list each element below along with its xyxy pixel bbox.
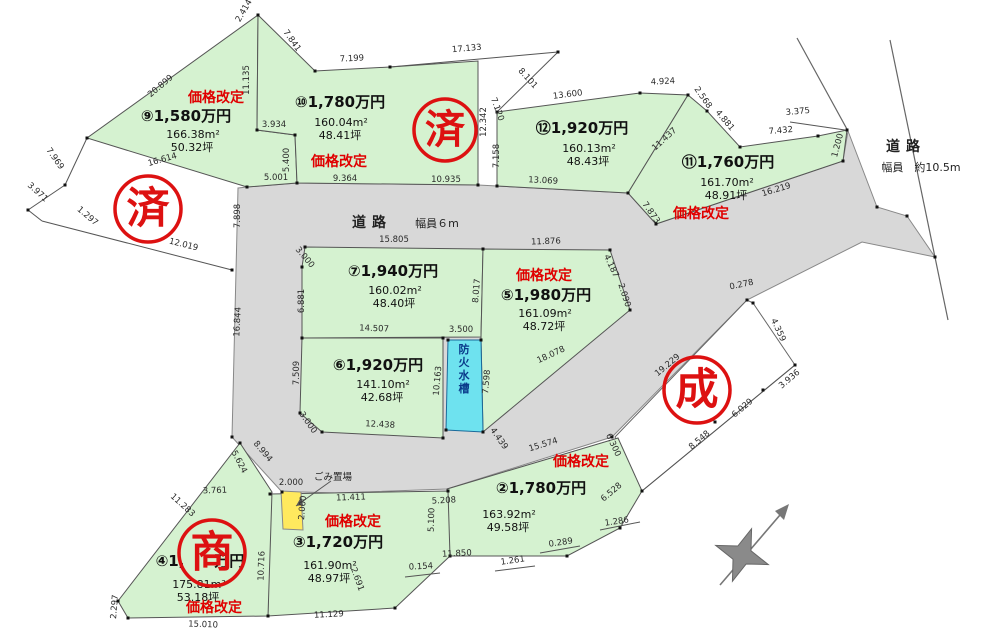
vertex-dot [794,364,797,367]
dimension-label: 3.971 [25,181,50,205]
dimension-label: 3.761 [203,486,228,497]
dimension-label: 9.364 [333,174,357,184]
price-revision-badge: 価格改定 [672,205,729,222]
dimension-label: 3.375 [785,106,810,118]
plot-area-m2: 161.70m² [700,176,754,189]
vertex-dot [314,70,317,73]
plot-area-m2: 160.02m² [368,284,422,297]
dimension-label: 7.199 [339,53,364,64]
price-revision-badge: 価格改定 [515,267,572,284]
dimension-label: 11.129 [314,609,344,621]
vertex-dot [394,607,397,610]
dimension-label: 5.100 [427,508,438,533]
dimension-label: 10.716 [256,551,267,581]
plot-area-m2: 160.13m² [562,142,616,155]
plot-price: ⑦1,940万円 [348,262,438,280]
vertex-dot [627,192,630,195]
dimension-label: 5.001 [264,173,288,183]
vertex-dot [294,134,297,137]
land-plot-map: 2.4147.8417.19917.1338.10111.13520.8993.… [0,0,1000,641]
vertex-dot [876,206,879,209]
plot-price: ⑩1,780万円 [295,93,385,111]
plot-area-tsubo: 42.68坪 [361,391,404,404]
vertex-dot [477,184,480,187]
vertex-dot [296,182,299,185]
stamp-text: 済 [425,107,466,153]
vertex-dot [842,160,845,163]
plot-price: ②1,780万円 [496,479,586,497]
vertex-dot [321,431,324,434]
dimension-label: 7.432 [768,125,793,137]
dimension-label: 13.069 [528,175,558,187]
vertex-dot [752,302,755,305]
road-width-label: 幅員 約10.5m [881,160,960,174]
plot-price: ⑫1,920万円 [536,119,628,137]
vertex-dot [817,135,820,138]
fire-water-tank-label: 防火水槽 [459,342,471,395]
plot-area-m2: 161.09m² [518,307,572,320]
stamp-text: 済 [127,184,171,234]
plot-area-tsubo: 50.32坪 [171,141,214,154]
dimension-label: 7.509 [292,361,302,385]
plot-area-m2: 160.04m² [314,116,368,129]
vertex-dot [846,129,849,132]
vertex-dot [447,490,450,493]
plot-area-tsubo: 48.40坪 [373,297,416,310]
vertex-dot [281,491,284,494]
vertex-dot [231,269,234,272]
dimension-label: 15.010 [188,619,218,630]
dimension-label: 1.297 [75,205,100,228]
dimension-label: 7.120 [488,96,506,122]
dimension-label: 4.924 [650,76,675,87]
plot-price: ③1,720万円 [293,533,383,551]
vertex-dot [86,137,89,140]
price-revision-badge: 価格改定 [310,153,367,170]
dimension-label: 12.019 [168,237,199,254]
dimension-label: 12.438 [365,419,395,431]
dimension-label: 14.507 [359,323,389,334]
north-arrow [706,504,789,591]
vertex-dot [906,215,909,218]
dimension-label: 7.598 [481,369,493,394]
vertex-dot [482,431,485,434]
price-revision-badge: 価格改定 [187,89,244,106]
vertex-dot [762,389,765,392]
dimension-label: 10.935 [431,175,461,185]
plot-area-m2: 141.10m² [356,378,410,391]
plot-area-tsubo: 49.58坪 [487,521,530,534]
vertex-dot [566,555,569,558]
vertex-dot [639,92,642,95]
vertex-dot [480,339,483,342]
price-revision-badge: 価格改定 [552,453,609,470]
vertex-dot [619,527,622,530]
vertex-dot [687,94,690,97]
vertex-dot [246,186,249,189]
dimension-label: 0.154 [408,561,433,572]
dimension-label: 7.969 [44,146,66,172]
dimension-label: 2.000 [279,478,303,488]
vertex-dot [746,299,749,302]
vertex-dot [609,249,612,252]
dimension-label: 1.286 [604,515,629,528]
plot-area-tsubo: 48.72坪 [523,320,566,333]
vertex-dot [447,339,450,342]
vertex-dot [482,248,485,251]
vertex-dot [739,146,742,149]
vertex-dot [301,337,304,340]
vertex-dot [496,185,499,188]
stamp-text: 商 [191,528,234,578]
garbage-place-label: ごみ置場 [314,471,353,483]
road-name-label: 道路 [352,214,392,231]
plot-area-tsubo: 48.43坪 [567,155,610,168]
dimension-label: 6.881 [297,289,307,313]
vertex-dot [442,437,445,440]
dimension-label: 11.876 [531,236,561,247]
vertex-dot [256,129,259,132]
dimension-label: 17.133 [452,43,483,56]
vertex-dot [714,421,717,424]
plot-price: ⑤1,980万円 [501,286,591,304]
vertex-dot [257,14,260,17]
vertex-dot [934,256,937,259]
road-name-label: 道路 [886,138,926,155]
dimension-label: 13.600 [552,88,583,102]
dimension-label: 11.850 [442,548,472,560]
vertex-dot [442,337,445,340]
dimension-label: 7.898 [233,204,243,228]
plot-price: ⑨1,580万円 [141,107,231,125]
vertex-dot [629,309,632,312]
dimension-label: 3.500 [449,325,473,335]
vertex-dot [301,266,304,269]
price-revision-badge: 価格改定 [324,513,381,530]
plot-area-tsubo: 48.91坪 [705,189,748,202]
price-revision-badge: 価格改定 [185,599,242,616]
plot-area-m2: 163.92m² [482,508,536,521]
dimension-label: 8.101 [516,66,540,91]
vertex-dot [641,490,644,493]
plot-area-tsubo: 48.97坪 [308,572,351,585]
stamp-text: 成 [676,365,719,415]
vertex-dot [267,615,270,618]
dimension-label: 1.261 [500,554,525,567]
dimension-label: 12.342 [479,107,489,137]
vertex-dot [389,66,392,69]
plot-price: ⑪1,760万円 [682,153,774,171]
vertex-dot [231,436,234,439]
dimension-label: 2.000 [297,495,309,520]
plot-area-m2: 166.38m² [166,128,220,141]
plot-price: ⑥1,920万円 [333,356,423,374]
vertex-dot [127,617,130,620]
plot-area-tsubo: 48.41坪 [319,129,362,142]
dimension-label: 3.934 [262,120,286,130]
map-svg: 2.4147.8417.19917.1338.10111.13520.8993.… [0,0,1000,641]
plot-area-m2: 161.90m² [303,559,357,572]
dimension-label: 2.297 [109,594,121,619]
dimension-label: 8.017 [471,278,483,303]
vertex-dot [64,184,67,187]
vertex-dot [239,442,242,445]
road-width-label: 幅員６m [415,217,459,230]
dimension-label: 5.400 [282,148,292,172]
vertex-dot [557,51,560,54]
vertex-dot [445,429,448,432]
vertex-dot [27,209,30,212]
dimension-label: 11.411 [336,492,366,503]
dimension-label: 7.158 [492,144,502,168]
dimension-label: 15.805 [379,235,409,245]
vertex-dot [269,493,272,496]
dimension-label: 16.844 [232,307,244,337]
dimension-label: 5.208 [431,495,456,506]
